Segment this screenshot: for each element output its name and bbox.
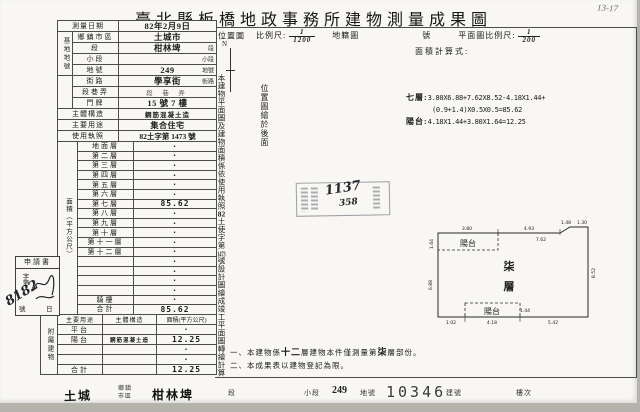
plan-scale-denominator: 200 — [518, 36, 540, 44]
floor-row-value: · — [134, 257, 216, 266]
dim-top-balcony-width: 3.80 — [462, 226, 472, 232]
site-info-table: 測量日期 82年2月9日 基地地號 鄉鎮市區 土城市 段 柑林埤段 小段 小段 … — [57, 20, 217, 142]
formula-balcony-line: 4.18X1.44+3.80X1.64=12.25 — [428, 118, 526, 126]
door-plate-value: 15 號 7 樓 — [119, 98, 216, 108]
strip-section-label: 段 — [228, 388, 236, 398]
floor-row-value: · — [134, 142, 216, 151]
right-border — [636, 27, 637, 377]
balcony-row-structure: 鋼筋混凝土造 — [103, 335, 156, 344]
attached-row-use — [58, 345, 102, 354]
main-use-value: 集合住宅 — [119, 120, 216, 130]
floor-row-label: 第十二層 — [78, 248, 133, 257]
floor-row-value: · — [134, 286, 216, 295]
section-value: 柑林埤 — [154, 43, 181, 53]
attached-area-header: 面積(平方公尺) — [157, 315, 216, 324]
attached-group-label: 附屬建物 — [41, 315, 57, 374]
vertical-note-part: 本建物平面圖及建物面積係依使用執照 — [217, 74, 226, 210]
row-label: 段巷弄 — [73, 87, 118, 97]
stamp-number-1: 1137 — [324, 178, 362, 198]
top-balcony-label: 陽台 — [460, 238, 476, 248]
row-label: 段 — [73, 43, 118, 53]
scale-denominator: 1200 — [289, 36, 315, 44]
vertical-note-number: 82 — [217, 210, 226, 218]
scale-header-row: 位置圖 比例尺: 11200 地籍圖 號 平面圖比例尺: 1200 — [218, 29, 540, 44]
area-calc-label: 面積計算式: — [415, 46, 469, 57]
floor-row-value: · — [134, 276, 216, 285]
strip-lot-label: 地號 — [360, 388, 376, 398]
floor-row-label: 第三層 — [78, 161, 133, 170]
subsection-suffix: 小段 — [202, 55, 214, 64]
survey-date-value: 82年2月9日 — [119, 21, 216, 31]
vertical-note-part: 土使字第 — [217, 218, 226, 250]
section-suffix: 段 — [208, 44, 214, 53]
structure-value: 鋼筋混凝土造 — [119, 109, 216, 119]
row-label: 街路 — [73, 76, 118, 86]
dim-right-height: 8.52 — [591, 268, 597, 278]
floor-row-label: 第二層 — [78, 152, 133, 161]
vertical-permit-note: 本建物平面圖及建物面積係依使用執照82土使字第1473號設計圖繪成竣工平面圖轉繪… — [216, 74, 227, 384]
receipt-stamp: 1137 358 — [296, 181, 391, 217]
north-cross-icon — [226, 70, 235, 71]
attached-row-structure — [103, 365, 156, 374]
number-label: 號 — [422, 31, 431, 40]
floor-row-value: · — [134, 209, 216, 218]
application-box-header: 申請書 — [16, 257, 59, 269]
vertical-note-part: 號設計圖繪成竣工平面圖轉繪計算 — [217, 257, 226, 377]
floor-total-value: 85.62 — [134, 305, 216, 314]
floor-row-value: · — [134, 228, 216, 237]
lot-number-suffix: 地號 — [202, 66, 214, 75]
attached-structures-table: 附屬建物 主要用途 主體構造 面積(平方公尺) 平台 · 陽台 鋼筋混凝土造 1… — [40, 314, 217, 375]
dim-inner-top-width: 7.62 — [536, 237, 546, 243]
footnote-text: 一、本建物係 — [230, 348, 281, 357]
attached-row-structure — [103, 325, 156, 334]
arcade-row-label: 騎樓 — [78, 296, 133, 305]
dim-notch-diagonal: 1.48 — [561, 220, 571, 226]
strip-subsection-label: 小段 — [304, 388, 320, 398]
plan-scale-label: 平面圖比例尺: — [458, 31, 515, 40]
row-label: 門牌 — [73, 98, 118, 108]
floor-row-value: · — [134, 152, 216, 161]
floor-area-table: 面積（平方公尺） 地面層· 第二層· 第三層· 第四層· 第五層· 第六層· 第… — [57, 141, 217, 315]
floor-row-label: 第八層 — [78, 209, 133, 218]
strip-town-label-2: 市區 — [118, 391, 132, 400]
scale-numerator: 1 — [300, 29, 305, 36]
formula-floor7-line2: (0.9+1.4)X0.5X0.5=85.62 — [432, 106, 522, 114]
floor-row-label: 地面層 — [78, 142, 133, 151]
row-label: 地號 — [73, 65, 118, 75]
dim-bottom-right: 5.42 — [548, 320, 558, 326]
application-no-label: 號 — [19, 303, 26, 313]
use-permit-label: 使用執照 — [58, 131, 118, 141]
floor-row-value: · — [134, 219, 216, 228]
total-row-label: 合計 — [78, 305, 133, 314]
floor-row-value: · — [134, 248, 216, 257]
plan-scale-fraction: 1200 — [518, 29, 540, 44]
floor-row-value: · — [134, 190, 216, 199]
footnote-1: 一、本建物係十二層建物本件僅測量第柒層部份。 — [230, 346, 422, 359]
floor-7-area-value: 85.62 — [134, 200, 216, 209]
floor-row-value: · — [134, 161, 216, 170]
footnote-text: 層部份。 — [388, 348, 422, 357]
north-label: N — [222, 40, 227, 48]
floor-plan-drawing: 3.80 4.93 1.48 1.30 7.62 1.64 6.88 8.52 … — [425, 218, 605, 330]
location-on-back-note: 位置圖繪於後面 — [259, 84, 270, 154]
stamp-illegible-text — [311, 187, 318, 211]
balcony-row-use: 陽台 — [58, 335, 102, 344]
floor-row-value: · — [134, 238, 216, 247]
attached-total-label: 合計 — [58, 365, 102, 374]
strip-building-number: 10346 — [386, 383, 446, 401]
footnote-2: 二、本成果表以建物登記為限。 — [230, 359, 422, 372]
floor-row-value: · — [134, 171, 216, 180]
scale-label: 比例尺: — [256, 31, 286, 40]
floor-row-label: 第五層 — [78, 180, 133, 189]
vertical-note-number: 1473 — [217, 250, 226, 258]
floor-row-label: 第九層 — [78, 219, 133, 228]
footnote-measured-floor: 柒 — [378, 347, 388, 357]
attached-row-structure — [103, 355, 156, 364]
scanned-survey-document: { "title": "臺北縣板橋地政事務所建物測量成果圖", "misc": … — [0, 0, 640, 412]
dim-bottom-left: 1.02 — [446, 320, 456, 326]
floor-area-group-label: 面積（平方公尺） — [58, 142, 77, 314]
stamp-illegible-text — [373, 186, 380, 210]
strip-lot-value: 249 — [332, 385, 347, 396]
formula-floor7-line1: 3.80X6.88+7.62X8.52-4.18X1.44+ — [428, 94, 545, 102]
floor-row-label: 第十一層 — [78, 238, 133, 247]
floor-label-char1: 柒 — [503, 259, 516, 273]
footnote-total-floors: 十二 — [281, 347, 301, 357]
dim-top-middle: 4.93 — [524, 226, 534, 232]
site-lot-group-label: 基地地號 — [58, 32, 72, 75]
township-value: 土城市 — [154, 32, 181, 42]
attached-row-area: · — [157, 355, 216, 364]
row-label: 小段 — [73, 54, 118, 64]
bottom-index-strip: 土城 鄉鎮 市區 柑林埤 段 小段 249 地號 10346 建號 樓次 — [0, 383, 637, 403]
document-page: 臺北縣板橋地政事務所建物測量成果圖 13-17 位置圖 比例尺: 11200 地… — [0, 0, 637, 403]
location-scale-fraction: 11200 — [289, 29, 315, 44]
main-use-label: 主要用途 — [58, 120, 118, 130]
footnote-text: 層建物本件僅測量第 — [301, 348, 378, 357]
structure-label: 主體構造 — [58, 109, 118, 119]
floor-row-label: 第四層 — [78, 171, 133, 180]
strip-section-value: 柑林埤 — [152, 386, 194, 403]
floor-row-label — [78, 257, 133, 266]
stamp-number-2: 358 — [339, 197, 359, 209]
application-day-label: 日 — [46, 303, 53, 313]
use-permit-value: 82土字第 1473 號 — [119, 131, 216, 141]
area-formula-block: 七層:3.80X6.88+7.62X8.52-4.18X1.44+ (0.9+1… — [406, 92, 616, 128]
formula-balcony-label: 陽台: — [406, 117, 428, 126]
corner-handwritten-note: 13-17 — [597, 2, 618, 13]
strip-floor-label: 樓次 — [516, 388, 532, 398]
floor-row-label — [78, 286, 133, 295]
formula-floor7-label: 七層: — [406, 93, 428, 102]
floor-row-value: · — [134, 180, 216, 189]
attached-row-area: · — [157, 325, 216, 334]
footnotes: 一、本建物係十二層建物本件僅測量第柒層部份。 二、本成果表以建物登記為限。 — [230, 346, 422, 372]
row-label: 鄉鎮市區 — [73, 32, 118, 42]
floor-label-char2: 層 — [504, 280, 515, 293]
street-suffix: 街路 — [202, 77, 214, 86]
attached-structure-header: 主體構造 — [103, 315, 156, 324]
attached-row-use: 平台 — [58, 325, 102, 334]
floor-row-label: 第十層 — [78, 228, 133, 237]
dim-notch-right: 1.30 — [577, 220, 587, 226]
attached-row-area: · — [157, 345, 216, 354]
strip-building-label: 建號 — [446, 388, 462, 398]
top-rule — [215, 27, 637, 28]
lane-alley-value: 段 巷 弄 — [119, 87, 216, 97]
survey-date-label: 測量日期 — [58, 21, 118, 31]
attached-row-structure — [103, 345, 156, 354]
address-group-spacer — [58, 76, 72, 108]
floor-row-value: · — [134, 267, 216, 276]
location-map-label: 位置圖 — [218, 31, 245, 40]
dim-top-balcony-height: 1.64 — [429, 239, 435, 249]
lot-number-value: 249 — [160, 65, 174, 75]
attached-use-header: 主要用途 — [58, 315, 102, 324]
cadastral-map-label: 地籍圖 — [332, 31, 359, 40]
bottom-balcony-label: 陽台 — [484, 306, 500, 316]
attached-row-use — [58, 355, 102, 364]
plan-scale-numerator: 1 — [527, 29, 532, 36]
bottom-rule — [215, 377, 637, 378]
dim-left-height: 6.88 — [428, 280, 434, 290]
attached-total-value: 12.25 — [157, 365, 216, 374]
balcony-area-value: 12.25 — [157, 335, 216, 344]
street-value: 學享街 — [154, 76, 181, 86]
floor-row-label — [78, 267, 133, 276]
dim-bottom-balcony-height: 1.44 — [520, 308, 530, 314]
floor-row-label: 第六層 — [78, 190, 133, 199]
strip-town-value: 土城 — [64, 387, 93, 405]
floor-row-label — [78, 276, 133, 285]
floor-row-value: · — [134, 296, 216, 305]
stamp-illegible-text — [301, 188, 308, 212]
floor-row-label: 第七層 — [78, 200, 133, 209]
dim-bottom-balcony-width: 4.18 — [487, 320, 497, 326]
